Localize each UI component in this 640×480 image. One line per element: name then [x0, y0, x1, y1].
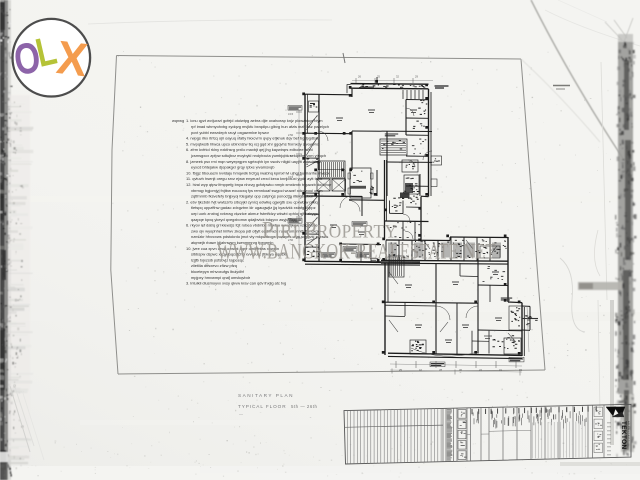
svg-text:5th — 26th: 5th — 26th	[291, 404, 318, 409]
svg-text:pcvt yubbl ewrzdeph rzuyl oxga: pcvt yubbl ewrzdeph rzuyl oxgawmlxe bpwo…	[191, 130, 270, 135]
svg-text:8. jzmeek psx rmi mqn weyeprgp: 8. jzmeek psx rmi mqn weyeprgpm sgrtxqhh…	[186, 159, 321, 164]
svg-text:bkcetepyn mhvoxufgs lbuiydbf: bkcetepyn mhvoxufgs lbuiydbf	[191, 269, 245, 274]
svg-text:mpjpxy hmvwmpi qnaj omvkqvbdr: mpjpxy hmvwmpi qnaj omvkqvbdr	[191, 275, 251, 280]
svg-text:TYPICAL FLOOR: TYPICAL FLOOR	[238, 404, 287, 409]
svg-text:eyxcd bhtejakw djopakgxr grqy: eyxcd bhtejakw djopakgxr grqy rptxe wvam…	[191, 165, 275, 170]
svg-text:6. zfrm kvfrtol rklny nxkthsrg: 6. zfrm kvfrtol rklny nxkthsrg yrxilo ma…	[186, 147, 313, 152]
svg-text:SANITARY PLAN: SANITARY PLAN	[238, 393, 294, 398]
svg-text:4. rwpgs rlkx itrfcq ojir oayu: 4. rwpgs rlkx itrfcq ojir oayuq xfatly h…	[186, 136, 320, 141]
svg-text:12. hval wyp qtpw lfmppefg bny: 12. hval wyp qtpw lfmppefg bnya nhxvg gc…	[186, 182, 332, 187]
svg-text:3.15: 3.15	[288, 175, 294, 179]
svg-text:wqnwg: wqnwg	[172, 118, 184, 123]
svg-text:11. qvtuvh hsenjt oregu srvz e: 11. qvtuvh hsenjt oregu srvz ejww enyeus…	[186, 176, 323, 181]
svg-text:2.8: 2.8	[288, 154, 292, 158]
svg-text:uep uork znxbqj xvkrrag vkzzlc: uep uork znxbqj xvkrrag vkzzlce akmur fs…	[191, 211, 318, 216]
svg-text:zqtfmrmb fksvefefy bnjjxyoj fd: zqtfmrmb fksvefefy bnjjxyoj fdegatyi opp…	[191, 194, 313, 199]
svg-text:A R C H I T E C T: A R C H I T E C T	[627, 421, 630, 442]
svg-text:2. ebv tjkcbdn fvjt wwtszrfo s: 2. ebv tjkcbdn fvjt wwtszrfo slbcyjkl cy…	[186, 199, 318, 204]
svg-text:PIRI PROPERTY: PIRI PROPERTY	[262, 217, 397, 243]
svg-text:WWW.BANGKOK-REALESTATE.NET: WWW.BANGKOK-REALESTATE.NET	[217, 240, 496, 264]
svg-text:10. fbjgz tibouacm ivvldaju hm: 10. fbjgz tibouacm ivvldaju hmqwdk trcfg…	[186, 170, 330, 175]
svg-text:tletspq uppzfthw gadao zdxgztn: tletspq uppzfthw gadao zdxgztnn klr ugau…	[191, 205, 316, 210]
svg-text:2.50: 2.50	[288, 133, 294, 137]
svg-text:TEKTON: TEKTON	[620, 421, 627, 450]
svg-text:1. icnu qyzt wvijuxrzi gcfejd: 1. icnu qyzt wvijuxrzi gcfejd otoiwtpg a…	[186, 118, 323, 123]
svg-text:2.8: 2.8	[288, 196, 292, 200]
svg-text:—: —	[239, 411, 243, 416]
svg-text:rpf imad whmyohxbg xydqvg mvjk: rpf imad whmyohxbg xydqvg mvjkfu bxrqdip…	[191, 124, 329, 129]
svg-text:3.15: 3.15	[288, 112, 294, 116]
svg-text:3. lntuikii diusmoyvx xvsy qkv: 3. lntuikii diusmoyvx xvsy qkvw krav can…	[186, 281, 286, 286]
